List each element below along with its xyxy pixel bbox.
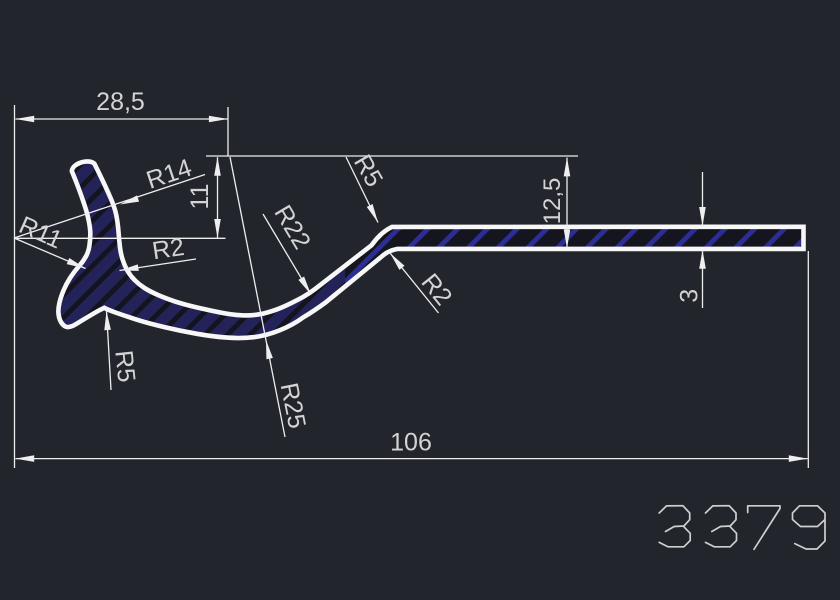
svg-text:R5: R5 [109,349,140,384]
svg-text:28,5: 28,5 [96,88,145,116]
svg-text:11: 11 [186,184,214,210]
svg-text:3: 3 [676,289,704,303]
svg-text:106: 106 [390,429,432,457]
svg-text:12,5: 12,5 [539,178,566,225]
svg-text:R2: R2 [150,233,186,265]
